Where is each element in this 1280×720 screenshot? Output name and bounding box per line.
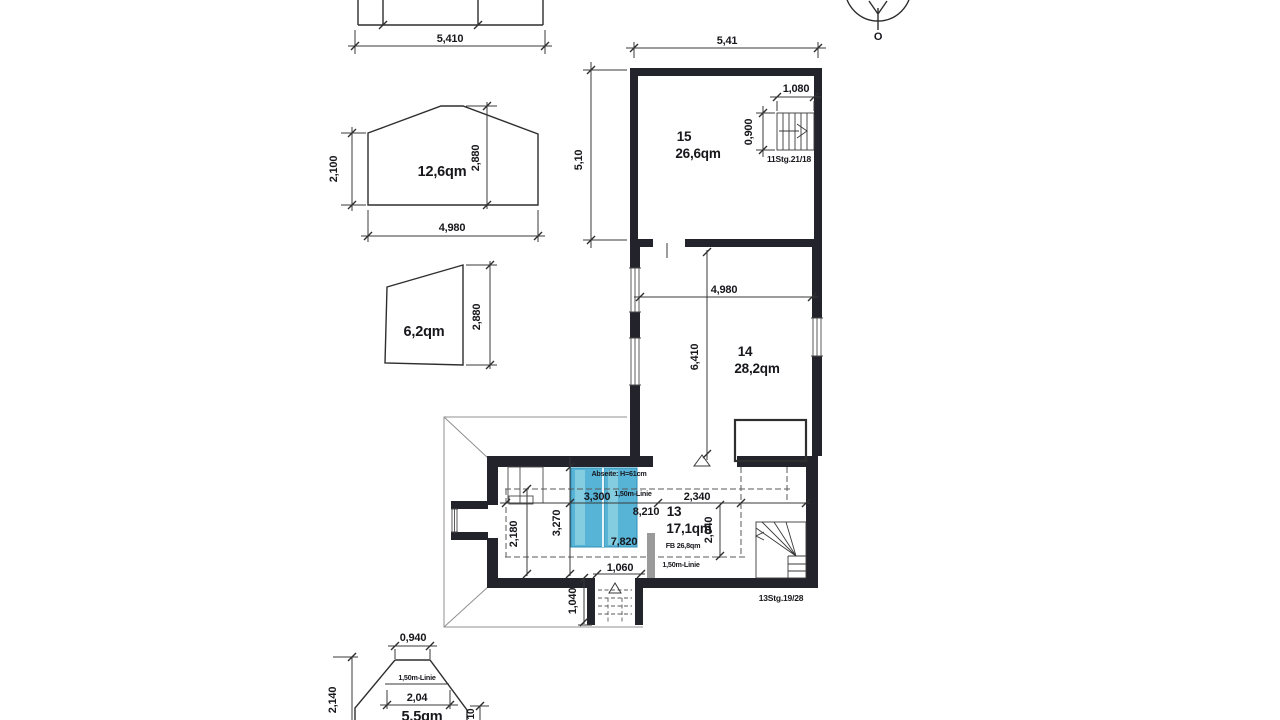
dim-label-right-cut: 10 bbox=[466, 708, 477, 719]
gable-area-label: 12,6qm bbox=[418, 164, 467, 180]
window-room14-left-2 bbox=[629, 338, 641, 385]
line-label-150-lower: 1,50m-Linie bbox=[662, 560, 700, 569]
room14-number: 14 bbox=[738, 344, 753, 359]
top-elevation-section: 5,410 bbox=[348, 0, 552, 54]
dim-label-1080: 1,080 bbox=[783, 83, 810, 95]
dim-label-5410: 5,410 bbox=[437, 33, 464, 45]
dim-label-0940: 0,940 bbox=[400, 632, 427, 644]
dim-label-2140: 2,140 bbox=[327, 687, 339, 714]
dim-label-2880-gable: 2,880 bbox=[470, 145, 482, 172]
dim-label-2880-side: 2,880 bbox=[471, 304, 483, 331]
dim-label-3270: 3,270 bbox=[551, 510, 563, 537]
compass-east-label: O bbox=[874, 31, 883, 43]
dim-label-6410: 6,410 bbox=[689, 344, 701, 371]
bottom-elevation-section: 0,940 1,50m-Linie 2,04 5,5qm 2,140 10 bbox=[327, 632, 489, 720]
side-area-label: 6,2qm bbox=[404, 324, 445, 340]
dim-label-8210: 8,210 bbox=[633, 506, 660, 518]
dim-label-2340: 2,340 bbox=[684, 491, 711, 503]
winder-stair bbox=[756, 522, 806, 578]
dim-label-510: 5,10 bbox=[573, 150, 585, 171]
dim-label-2040: 2,040 bbox=[703, 517, 715, 544]
dim-label-3300: 3,300 bbox=[584, 491, 611, 503]
entry-stair bbox=[598, 583, 632, 622]
dim-label-4980-room14: 4,980 bbox=[711, 284, 738, 296]
window-bay-left bbox=[451, 509, 458, 532]
gable-elevation-section: 2,100 2,880 4,980 12,6qm bbox=[328, 102, 545, 242]
room-15: 5,41 5,10 15 26,6qm 1,080 0,900 11Stg.21… bbox=[573, 35, 826, 248]
line-label-150-bottom: 1,50m-Linie bbox=[398, 673, 436, 682]
north-arrow-icon: O bbox=[845, 0, 911, 43]
floor-plan-drawing: 5,410 O 2,100 2,880 4,980 12,6qm 2,880 6… bbox=[0, 0, 1280, 720]
abseite-note: Abseite: H=61cm bbox=[591, 469, 646, 478]
room13-floor-area: FB 26,8qm bbox=[666, 541, 701, 550]
column bbox=[647, 533, 655, 578]
dim-label-204: 2,04 bbox=[407, 692, 429, 704]
room15-area: 26,6qm bbox=[675, 146, 721, 161]
room13-number: 13 bbox=[667, 504, 682, 519]
opening-marker-triangle bbox=[694, 455, 710, 466]
stair-label-room13: 13Stg.19/28 bbox=[759, 593, 804, 603]
bottom-area-label: 5,5qm bbox=[402, 709, 443, 720]
room14-area: 28,2qm bbox=[734, 361, 780, 376]
room15-number: 15 bbox=[677, 129, 692, 144]
dim-label-7820: 7,820 bbox=[611, 536, 638, 548]
dim-label-0900: 0,900 bbox=[743, 119, 755, 146]
chimney-niche bbox=[735, 420, 806, 461]
side-elevation-section: 2,880 6,2qm bbox=[385, 261, 497, 369]
dim-label-1060: 1,060 bbox=[607, 562, 634, 574]
room-14: 4,980 6,410 14 28,2qm bbox=[634, 248, 818, 466]
built-in-cupboards bbox=[508, 467, 543, 504]
window-room14-right bbox=[811, 318, 823, 356]
dim-label-2180: 2,180 bbox=[508, 521, 520, 548]
scanned-floor-plan-page: 5,410 O 2,100 2,880 4,980 12,6qm 2,880 6… bbox=[0, 0, 1280, 720]
window-room14-left-1 bbox=[629, 268, 641, 312]
room-13: 13Stg.19/28 Abseite: H=61cm 3,300 1,50m-… bbox=[500, 457, 810, 626]
stair-room15 bbox=[777, 113, 814, 150]
dim-label-4980-gable: 4,980 bbox=[439, 222, 466, 234]
line-label-150-upper: 1,50m-Linie bbox=[614, 489, 652, 498]
stair-label-room15: 11Stg.21/18 bbox=[767, 154, 812, 164]
dim-label-1040: 1,040 bbox=[567, 588, 579, 615]
dim-label-2100: 2,100 bbox=[328, 156, 340, 183]
dim-label-541: 5,41 bbox=[717, 35, 738, 47]
